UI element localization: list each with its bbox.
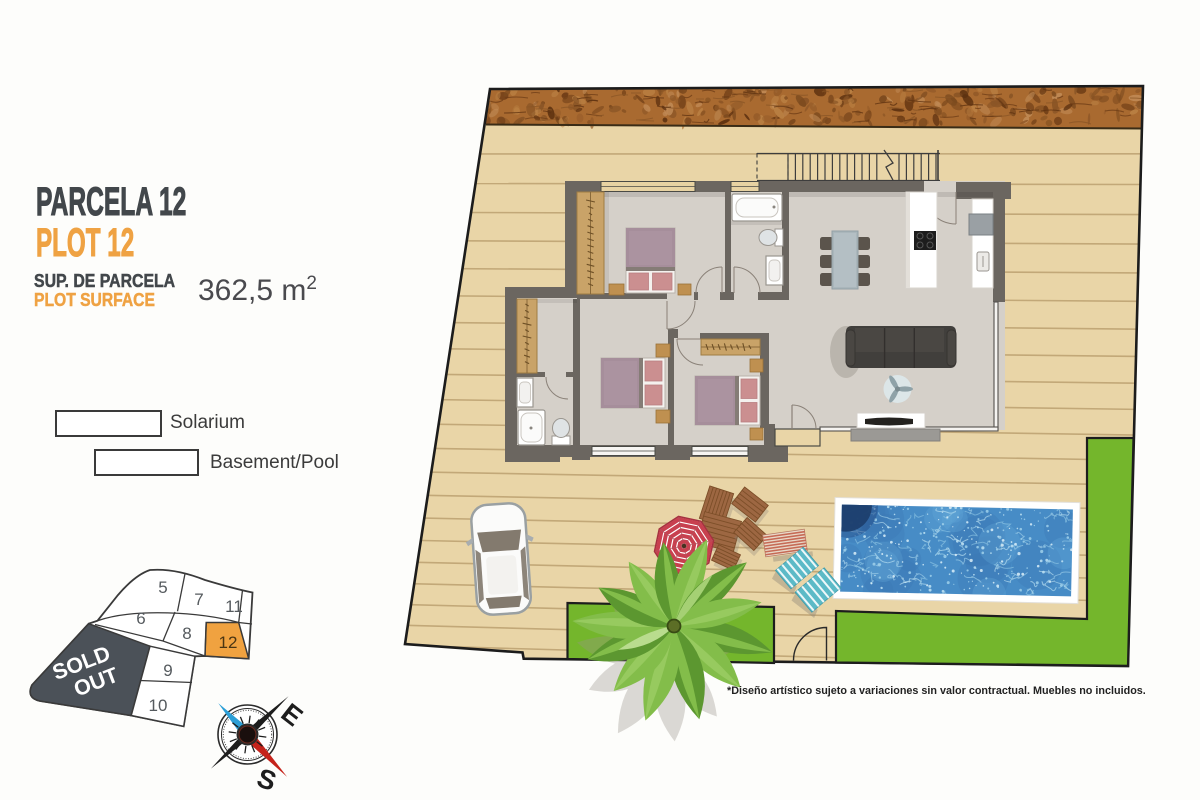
svg-text:10: 10	[149, 696, 168, 715]
svg-text:8: 8	[182, 624, 191, 643]
svg-text:5: 5	[158, 578, 167, 597]
svg-text:6: 6	[136, 609, 145, 628]
svg-text:*Diseño artístico sujeto a var: *Diseño artístico sujeto a variaciones s…	[727, 685, 1146, 697]
svg-text:9: 9	[163, 661, 172, 680]
svg-text:E: E	[275, 697, 308, 732]
svg-text:12: 12	[219, 633, 238, 652]
svg-text:11: 11	[225, 597, 243, 616]
svg-text:S: S	[253, 763, 280, 797]
svg-text:7: 7	[194, 590, 203, 609]
